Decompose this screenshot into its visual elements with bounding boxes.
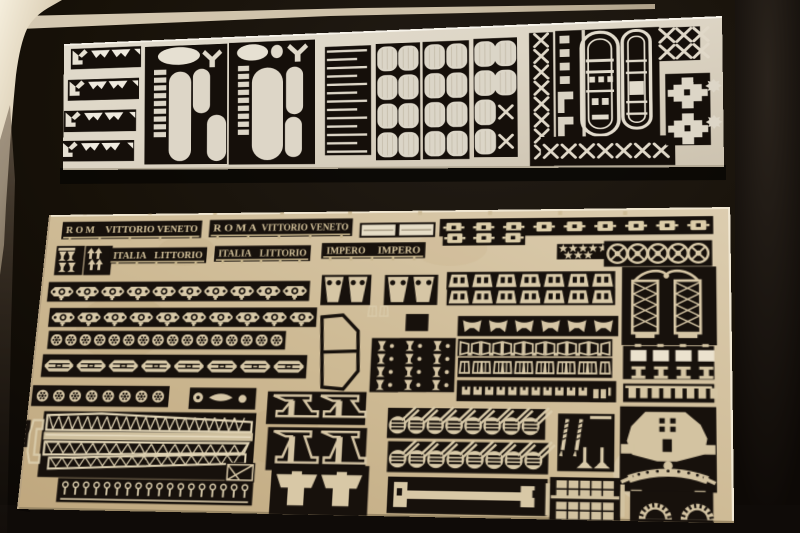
svg-text:VITTORIO VENETO: VITTORIO VENETO bbox=[105, 224, 198, 235]
svg-text:R O M A: R O M A bbox=[213, 223, 258, 234]
svg-text:IMPERO: IMPERO bbox=[377, 245, 420, 256]
svg-text:LITTORIO: LITTORIO bbox=[259, 248, 307, 259]
svg-text:IMPERO: IMPERO bbox=[326, 245, 365, 256]
svg-text:ITALIA: ITALIA bbox=[218, 248, 252, 259]
svg-text:R O M: R O M bbox=[66, 225, 96, 236]
svg-text:LITTORIO: LITTORIO bbox=[154, 250, 203, 261]
svg-text:VITTORIO VENETO: VITTORIO VENETO bbox=[261, 222, 349, 233]
svg-text:ITALIA: ITALIA bbox=[113, 250, 148, 261]
